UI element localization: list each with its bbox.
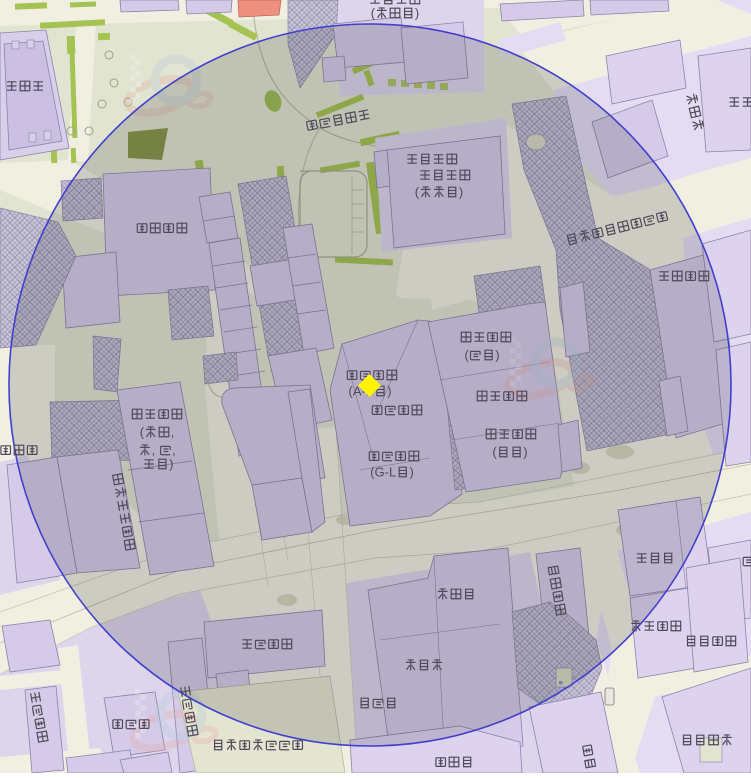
svg-text:): ) [495,348,499,363]
svg-text:): ) [410,465,414,480]
svg-text:): ) [169,457,173,472]
svg-text:(: ( [464,348,469,363]
svg-text:,: , [152,443,156,458]
svg-text:(: ( [371,6,376,21]
svg-text:L: L [389,465,396,480]
svg-text:): ) [415,6,419,21]
svg-text:,: , [172,443,176,458]
svg-text:(: ( [492,445,497,460]
svg-text:): ) [387,384,391,399]
svg-text:G: G [375,465,385,480]
svg-text:(: ( [415,185,420,200]
svg-text:): ) [459,185,463,200]
svg-text:(: ( [140,425,145,440]
svg-text:,: , [171,425,175,440]
svg-text:): ) [523,445,527,460]
